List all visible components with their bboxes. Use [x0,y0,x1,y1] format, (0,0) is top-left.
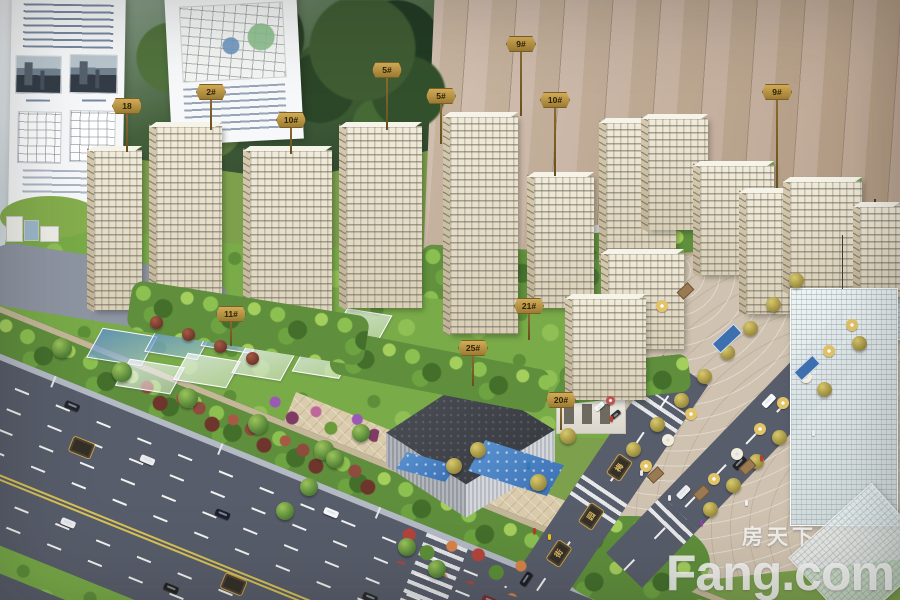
model-photo: 街 园 梅 [0,0,900,600]
red-leaf-tree [246,352,259,365]
tag-stick [776,100,778,188]
figure [548,534,551,540]
tag-plate: 10# [276,112,306,128]
residential-tower [534,176,594,308]
tree [326,450,344,468]
street-plaque-char: 街 [552,547,566,560]
parasol [731,448,743,460]
building-number-tag: 2# [196,84,226,130]
parasol [708,473,720,485]
tag-stick [230,322,232,346]
parasol [656,300,668,312]
car [481,595,498,600]
tag-plate: 20# [546,392,576,408]
street-tree [626,442,641,457]
storefront [582,404,592,424]
figure [668,495,671,501]
model-small-building [40,226,59,242]
street-tree [743,321,758,336]
street-plaque: 梅 [606,453,634,482]
building-number-tag: 11# [216,306,246,346]
residential-tower [346,126,422,308]
caption-line [82,99,106,103]
tree [352,424,370,442]
tag-plate: 9# [762,84,792,100]
figure [812,430,815,436]
tag-stick [472,356,474,386]
tag-plate: 5# [372,62,402,78]
tree [276,502,294,520]
car [362,591,379,600]
autumn-tree [470,442,486,458]
tree [112,362,132,382]
building-number-tag: 18 [112,98,142,152]
street-tree [674,393,689,408]
street-tree [726,478,741,493]
residential-midrise [572,298,646,400]
antenna [842,235,844,289]
tree [178,388,198,408]
figure [640,470,643,476]
tag-plate: 21# [514,298,544,314]
tag-plate: 18 [112,98,142,114]
street-tree [817,382,832,397]
parasol [846,319,858,331]
tag-plate: 2# [196,84,226,100]
building-number-tag: 5# [426,88,456,144]
figure [745,500,748,506]
tag-stick [210,100,212,130]
tree [52,338,72,358]
residential-midrise [860,206,900,298]
watermark: 房天下 Fang.com [666,527,894,598]
street-tree [650,417,665,432]
tree [398,538,416,556]
residential-tower [450,116,518,334]
parasol [754,423,766,435]
tag-plate: 11# [216,306,246,322]
parasol [777,397,789,409]
street-tree [697,369,712,384]
model-small-building [6,216,23,242]
street-tree [772,430,787,445]
street-plaque-char: 梅 [613,461,627,474]
parasol [685,408,697,420]
car [676,484,691,500]
tag-stick [554,108,556,176]
building-number-tag: 20# [546,392,576,430]
tree [300,478,318,496]
tag-plate: 9# [506,36,536,52]
tag-plate: 10# [540,92,570,108]
glass-concept-tower [790,288,898,526]
car [761,393,776,409]
building-number-tag: 25# [458,340,488,386]
tag-stick [528,314,530,340]
tree [428,560,446,578]
figure [700,520,703,526]
poster-title-line [198,0,260,2]
street-tree [703,502,718,517]
tag-stick [520,52,522,116]
street-tree [766,297,781,312]
tag-stick [560,408,562,430]
street-plaque-char: 园 [585,510,599,523]
tag-stick [440,104,442,144]
building-number-tag: 10# [276,112,306,154]
model-small-building [24,220,39,241]
tag-stick [290,128,292,154]
floorplan-thumbnail [17,111,62,164]
figure [527,462,530,468]
location-map [179,1,287,82]
tag-plate: 25# [458,340,488,356]
poster-text-block [23,3,114,49]
building-number-tag: 21# [514,298,544,340]
street-tree [789,273,804,288]
building-number-tag: 10# [540,92,570,176]
tree [248,414,268,434]
building-number-tag: 5# [372,62,402,130]
figure [610,416,613,422]
building-number-tag: 9# [762,84,792,188]
autumn-tree [530,474,547,491]
autumn-tree [446,458,462,474]
road-plaque [68,435,97,460]
tag-plate: 5# [426,88,456,104]
figure [760,455,763,461]
parasol [662,434,674,446]
render-thumbnail [15,55,62,94]
red-leaf-tree [182,328,195,341]
render-thumbnail [69,54,118,94]
autumn-tree [560,428,576,444]
tag-stick [126,114,128,152]
tag-stick [386,78,388,130]
watermark-logo: Fang.com [666,548,894,598]
building-number-tag: 9# [506,36,536,116]
parasol [823,345,835,357]
figure [533,528,536,534]
red-parasol [606,396,615,405]
street-tree [852,336,867,351]
caption-line [26,99,50,103]
red-leaf-tree [150,316,163,329]
